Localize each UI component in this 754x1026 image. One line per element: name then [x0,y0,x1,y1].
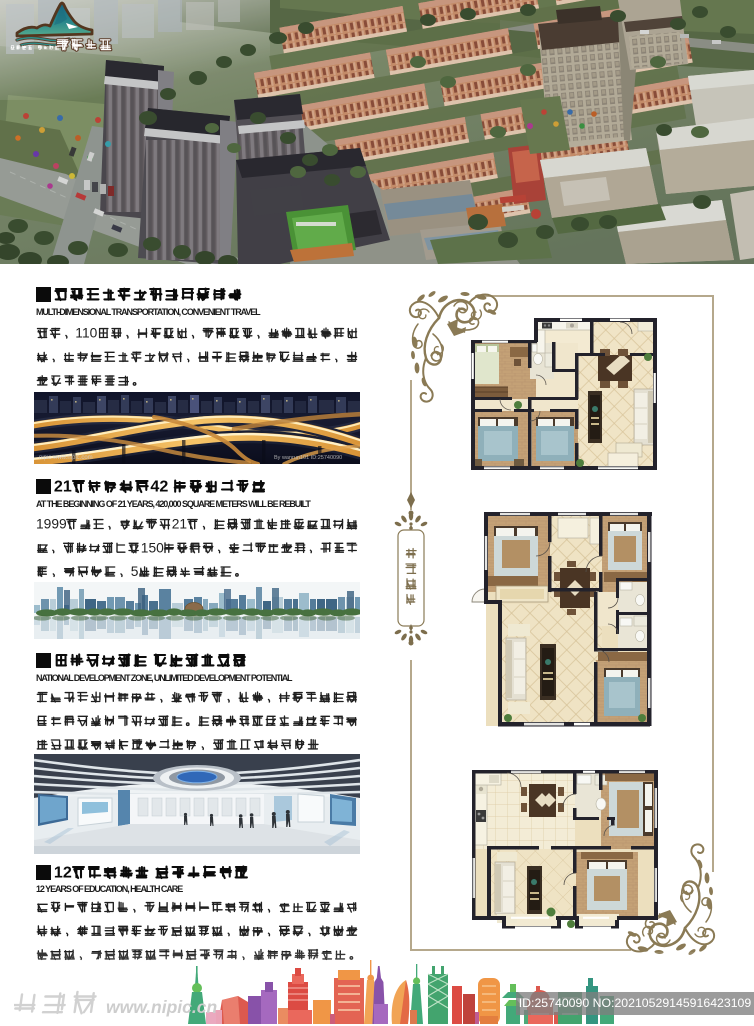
svg-text:1999: 1999 [36,517,67,532]
svg-text:www.nipic.cn: www.nipic.cn [106,997,217,1017]
svg-text:nipic www.nipic.com: nipic www.nipic.com [39,455,93,461]
svg-text:12: 12 [54,864,72,882]
svg-text:5: 5 [131,564,139,579]
svg-text:By wanrun101 ID:25740090: By wanrun101 ID:25740090 [274,455,342,461]
svg-text:110: 110 [75,326,97,341]
svg-text:150: 150 [141,540,164,555]
svg-text:42: 42 [150,478,168,496]
svg-text:21: 21 [54,478,72,496]
svg-text:21: 21 [172,517,187,532]
